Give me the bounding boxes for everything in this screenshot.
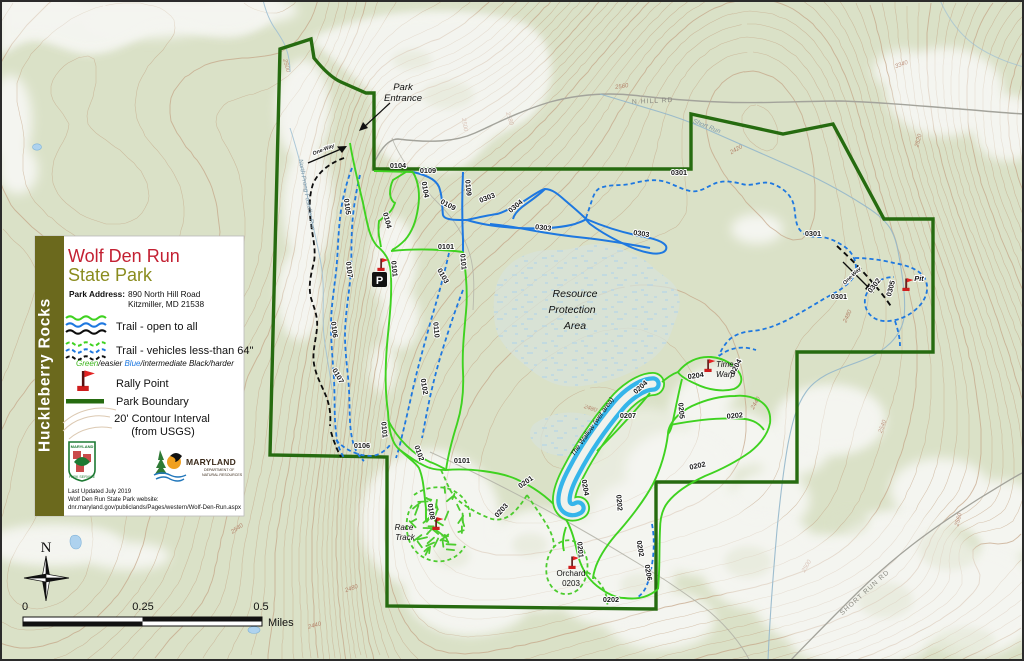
svg-text:0109: 0109 xyxy=(420,166,436,175)
svg-text:Race: Race xyxy=(395,523,414,532)
svg-text:0301: 0301 xyxy=(671,168,687,177)
svg-text:0101: 0101 xyxy=(379,421,389,438)
svg-text:0303: 0303 xyxy=(535,222,552,233)
svg-text:0205: 0205 xyxy=(676,402,686,419)
svg-text:0101: 0101 xyxy=(454,456,470,465)
svg-text:Entrance: Entrance xyxy=(384,93,422,104)
svg-text:DEPARTMENT OF: DEPARTMENT OF xyxy=(204,468,235,472)
svg-text:0301: 0301 xyxy=(831,292,847,301)
svg-text:0.5: 0.5 xyxy=(253,601,268,613)
svg-text:State Park: State Park xyxy=(68,265,153,285)
svg-text:0.25: 0.25 xyxy=(132,601,153,613)
svg-text:Park Address:: Park Address: xyxy=(69,289,125,299)
svg-text:0110: 0110 xyxy=(431,321,441,338)
svg-text:Track: Track xyxy=(395,533,415,542)
svg-text:NATURAL RESOURCES: NATURAL RESOURCES xyxy=(202,473,243,477)
svg-text:dnr.maryland.gov/publiclands/P: dnr.maryland.gov/publiclands/Pages/weste… xyxy=(68,505,241,511)
svg-text:0: 0 xyxy=(22,601,28,613)
svg-text:Time: Time xyxy=(716,360,734,369)
svg-text:N: N xyxy=(41,540,52,556)
svg-text:0101: 0101 xyxy=(438,242,454,251)
svg-text:P: P xyxy=(376,275,383,287)
svg-text:Kitzmiller, MD 21538: Kitzmiller, MD 21538 xyxy=(128,299,204,309)
svg-text:Warp: Warp xyxy=(716,370,736,379)
svg-text:Wolf Den Run: Wolf Den Run xyxy=(68,246,180,266)
svg-text:0101: 0101 xyxy=(458,253,468,270)
svg-text:Orchard: Orchard xyxy=(557,569,586,578)
svg-text:Park: Park xyxy=(393,82,414,93)
svg-text:0201: 0201 xyxy=(575,541,585,558)
svg-text:Huckleberry Rocks: Huckleberry Rocks xyxy=(37,298,54,452)
svg-text:0202: 0202 xyxy=(726,410,743,420)
svg-text:890 North Hill Road: 890 North Hill Road xyxy=(128,289,201,299)
svg-text:PARK SERVICE: PARK SERVICE xyxy=(69,475,96,479)
svg-text:Protection: Protection xyxy=(548,304,595,316)
svg-text:0106: 0106 xyxy=(354,441,370,450)
svg-text:(from USGS): (from USGS) xyxy=(131,426,195,438)
svg-text:0202: 0202 xyxy=(614,494,624,511)
svg-text:Pit: Pit xyxy=(914,274,924,283)
svg-text:Rally Point: Rally Point xyxy=(116,378,169,390)
svg-text:MARYLAND: MARYLAND xyxy=(186,457,236,467)
svg-text:0109: 0109 xyxy=(463,179,473,196)
svg-text:Wolf Den Run State Park websit: Wolf Den Run State Park website: xyxy=(68,497,159,503)
svg-text:20' Contour Interval: 20' Contour Interval xyxy=(114,413,210,425)
svg-text:Area: Area xyxy=(563,320,586,332)
svg-text:Trail - vehicles less-than 64": Trail - vehicles less-than 64" xyxy=(116,345,253,357)
svg-text:0104: 0104 xyxy=(390,161,407,170)
svg-text:0101: 0101 xyxy=(389,260,399,277)
svg-text:Resource: Resource xyxy=(553,288,598,300)
svg-text:Green/easier Blue/intermediat: Green/easier Blue/intermediate Black/har… xyxy=(76,359,234,368)
svg-text:Last Updated July 2019: Last Updated July 2019 xyxy=(68,489,132,495)
svg-text:Miles: Miles xyxy=(268,617,294,629)
svg-text:0202: 0202 xyxy=(603,595,619,604)
svg-text:0301: 0301 xyxy=(805,229,821,238)
svg-text:0207: 0207 xyxy=(620,411,636,420)
svg-text:Trail - open to all: Trail - open to all xyxy=(116,321,198,333)
svg-text:0203: 0203 xyxy=(562,579,580,588)
svg-text:MARYLAND: MARYLAND xyxy=(71,444,94,449)
svg-text:Park Boundary: Park Boundary xyxy=(116,396,189,408)
